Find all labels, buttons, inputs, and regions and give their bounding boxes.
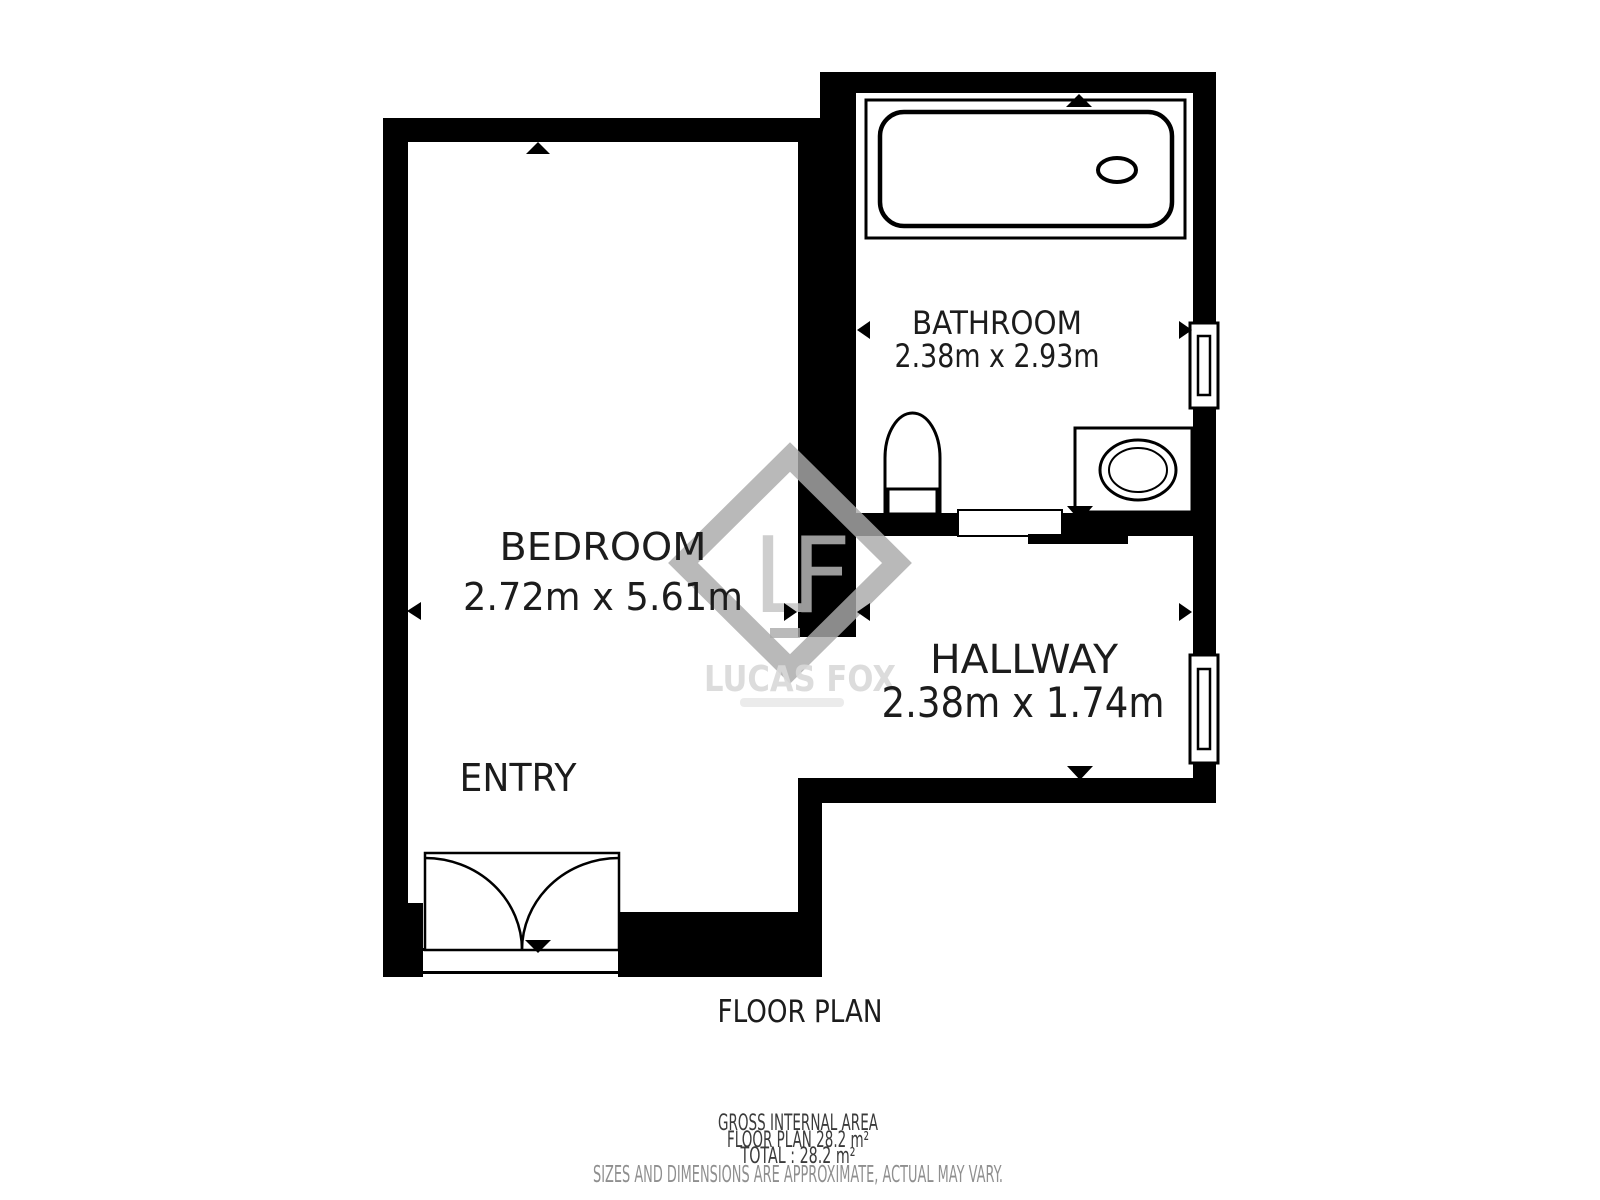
bathroom-door-opening	[958, 510, 1062, 536]
toilet-icon	[885, 413, 940, 514]
window-icon	[1190, 655, 1218, 763]
bedroom-dimensions: 2.72m x 5.61m	[463, 575, 743, 619]
wall-bottom-right-block	[618, 912, 822, 977]
double-swing-door-icon	[425, 853, 619, 950]
watermark-tagline	[740, 698, 844, 707]
wall-bedroom-top	[383, 118, 856, 142]
bathtub-icon	[866, 100, 1185, 238]
bathroom-dimensions: 2.38m x 2.93m	[895, 337, 1100, 375]
hallway-label: HALLWAY	[930, 637, 1119, 683]
wall-bottom-left-jamb	[383, 903, 423, 977]
watermark-monogram-tick	[770, 628, 800, 638]
entry-label: ENTRY	[460, 756, 578, 800]
wall-bathroom-top	[820, 72, 1216, 93]
floor-plan-svg: LF LUCAS FOX BEDROOM 2.72m x 5.61m BATHR…	[0, 0, 1600, 1200]
sink-icon	[1075, 428, 1192, 512]
wall-bedroom-left	[383, 118, 408, 977]
page-title: FLOOR PLAN	[718, 994, 883, 1030]
wall-hallway-bottom	[798, 778, 1216, 803]
entry-threshold-bottom-line	[423, 971, 619, 974]
window-icon	[1190, 323, 1218, 408]
disclaimer-label: SIZES AND DIMENSIONS ARE APPROXIMATE, AC…	[593, 1162, 1003, 1188]
hallway-dimensions: 2.38m x 1.74m	[882, 678, 1165, 727]
watermark-brand: LUCAS FOX	[704, 659, 896, 700]
bedroom-label: BEDROOM	[500, 525, 707, 569]
